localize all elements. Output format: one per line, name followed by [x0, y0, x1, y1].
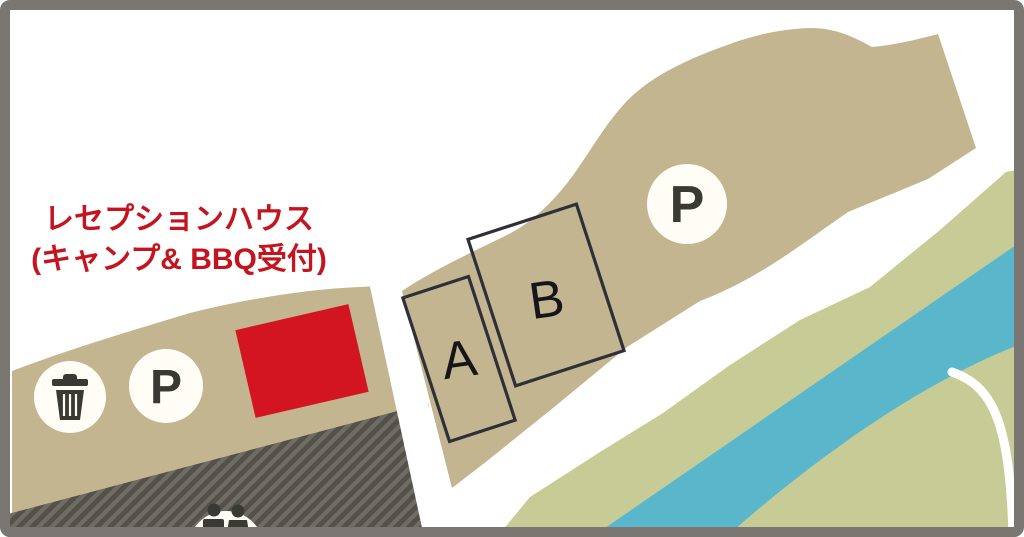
parking-icon: P	[150, 361, 182, 414]
restroom-icon-head-right	[232, 505, 245, 518]
parking-marker-reception: P	[129, 349, 203, 423]
campground-map: A B P P	[0, 0, 1024, 537]
parking-marker-upper: P	[647, 164, 727, 244]
trash-marker	[34, 361, 106, 433]
restroom-icon-body-left	[203, 519, 224, 537]
map-canvas: A B P P	[0, 0, 1024, 537]
restroom-icon-body-right	[226, 520, 250, 537]
restroom-icon-head-left	[208, 504, 221, 517]
trash-icon-lid	[52, 379, 88, 386]
parking-icon: P	[670, 176, 705, 234]
